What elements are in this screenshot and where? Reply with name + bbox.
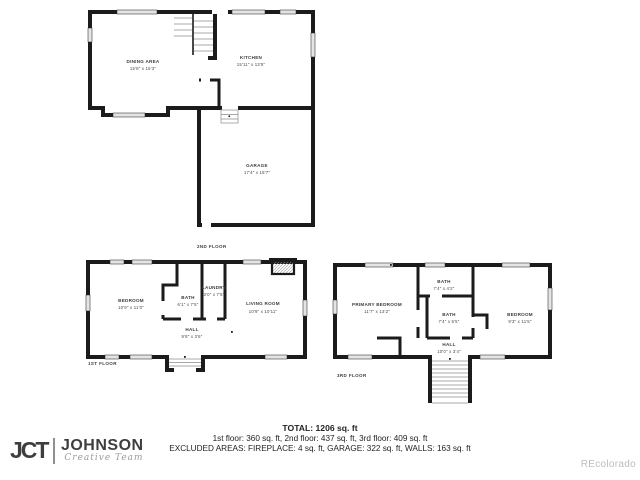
room-label-bath-top: BATH <box>437 279 451 284</box>
room-label-living: LIVING ROOM <box>246 301 280 306</box>
windows-2nd <box>88 10 315 117</box>
logo-initials: JCT <box>10 437 47 464</box>
room-label-hall-3rd: HALL <box>442 342 455 347</box>
fireplace <box>269 258 297 274</box>
garage-steps <box>221 110 238 123</box>
wall-ticks-2nd <box>89 84 314 226</box>
room-dims-kitchen: 15'11" x 13'5" <box>237 62 266 67</box>
floor-label-2nd: 2ND FLOOR <box>197 244 227 249</box>
room-label-bath: BATH <box>181 295 195 300</box>
floor-plan-2nd: DINING AREA 15'8" x 15'3" KITCHEN 15'11"… <box>85 5 320 250</box>
floor-label-1st: 1ST FLOOR <box>88 361 117 366</box>
room-label-primary-bedroom: PRIMARY BEDROOM <box>352 302 402 307</box>
room-dims-hall: 9'8" x 3'6" <box>182 334 203 339</box>
room-dims-dining: 15'8" x 15'3" <box>130 66 156 71</box>
room-dims-hall-3rd: 10'0" x 3'4" <box>437 349 461 354</box>
logo-text-block: JOHNSON Creative Team <box>61 438 144 463</box>
room-dims-bedroom: 10'9" x 11'0" <box>118 305 144 310</box>
room-dims-living: 10'9" x 10'11" <box>249 309 278 314</box>
room-label-dining: DINING AREA <box>127 59 160 64</box>
room-label-bedroom-3rd: BEDROOM <box>507 312 533 317</box>
room-dims-primary-bedroom: 11'7" x 13'2" <box>364 309 390 314</box>
floor-plan-1st: BEDROOM 10'9" x 11'0" BATH 6'1" x 7'5" L… <box>85 255 310 380</box>
recolorado-watermark: REcolorado <box>581 459 636 470</box>
room-label-hall: HALL <box>185 327 198 332</box>
room-label-bedroom: BEDROOM <box>118 298 144 303</box>
staircase-3rd <box>430 355 470 403</box>
walls-2nd <box>90 12 313 225</box>
room-dims-laundry: 3'0" x 7'5" <box>204 292 225 297</box>
company-logo: JCT JOHNSON Creative Team <box>10 437 144 464</box>
room-label-kitchen: KITCHEN <box>240 55 263 60</box>
room-dims-garage: 17'4" x 18'7" <box>244 170 270 175</box>
logo-divider <box>53 438 55 464</box>
floor-label-3rd: 3RD FLOOR <box>337 373 367 378</box>
logo-company-name: JOHNSON <box>61 438 144 454</box>
floor-plan-3rd: PRIMARY BEDROOM 11'7" x 13'2" BATH 7'4" … <box>330 255 560 405</box>
room-dims-bath-top: 7'4" x 4'2" <box>434 286 455 291</box>
room-label-bath-mid: BATH <box>442 312 456 317</box>
room-label-garage: GARAGE <box>246 163 268 168</box>
room-dims-bath: 6'1" x 7'5" <box>178 302 199 307</box>
floor-plan-sheet: DINING AREA 15'8" x 15'3" KITCHEN 15'11"… <box>0 0 640 480</box>
room-labels-1st: BEDROOM 10'9" x 11'0" BATH 6'1" x 7'5" L… <box>88 285 280 366</box>
room-dims-bath-mid: 7'4" x 5'5" <box>439 319 460 324</box>
total-area-text: TOTAL: 1206 sq. ft <box>0 423 640 434</box>
room-labels-3rd: PRIMARY BEDROOM 11'7" x 13'2" BATH 7'4" … <box>337 279 533 378</box>
logo-tagline: Creative Team <box>61 453 144 463</box>
staircase-2nd <box>174 14 213 55</box>
room-dims-bedroom-3rd: 9'3" x 11'5" <box>508 319 532 324</box>
room-label-laundry: LAUNDRY <box>202 285 226 290</box>
